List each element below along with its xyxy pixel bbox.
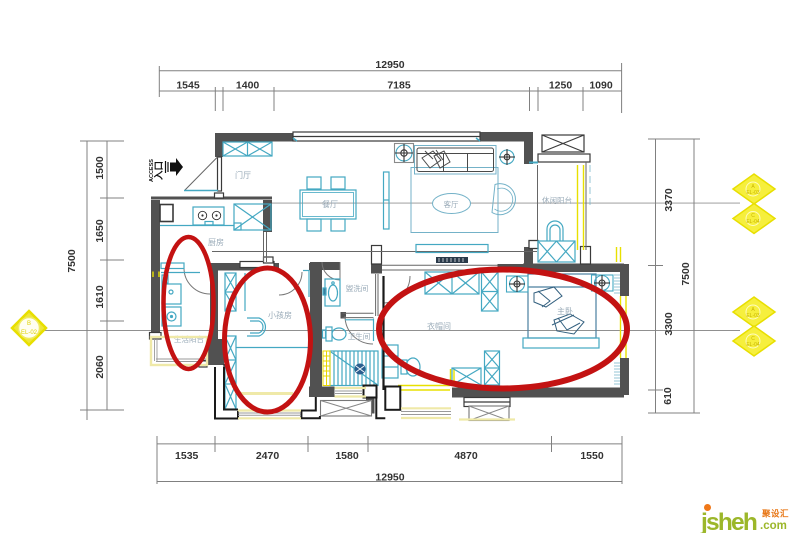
svg-text:小孩房: 小孩房 <box>268 310 292 320</box>
svg-text:7185: 7185 <box>387 80 411 92</box>
svg-text:1580: 1580 <box>335 450 359 462</box>
svg-text:7500: 7500 <box>680 262 692 286</box>
svg-text:1550: 1550 <box>580 450 604 462</box>
svg-text:4870: 4870 <box>454 450 478 462</box>
svg-text:1545: 1545 <box>176 80 200 92</box>
svg-text:EL-02: EL-02 <box>21 330 38 336</box>
svg-text:客厅: 客厅 <box>444 199 459 209</box>
svg-text:衣帽间: 衣帽间 <box>427 321 451 331</box>
svg-text:1500: 1500 <box>94 156 106 180</box>
svg-text:厨房: 厨房 <box>208 237 224 247</box>
svg-text:1535: 1535 <box>175 450 199 462</box>
svg-text:12950: 12950 <box>375 59 404 71</box>
svg-text:入口: 入口 <box>154 161 165 181</box>
svg-text:门厅: 门厅 <box>235 170 251 180</box>
svg-text:3370: 3370 <box>663 188 675 212</box>
svg-text:ACCESS: ACCESS <box>149 159 155 182</box>
svg-text:盥洗间: 盥洗间 <box>346 283 369 293</box>
svg-text:1400: 1400 <box>236 80 260 92</box>
svg-text:EL-04: EL-04 <box>746 219 760 225</box>
svg-text:3300: 3300 <box>663 312 675 336</box>
svg-text:卫生间: 卫生间 <box>348 331 371 341</box>
svg-text:.com: .com <box>760 520 787 532</box>
svg-text:2470: 2470 <box>256 450 280 462</box>
svg-text:聚设汇: 聚设汇 <box>761 509 789 519</box>
svg-text:休闲阳台: 休闲阳台 <box>542 195 572 205</box>
svg-text:EL-03: EL-03 <box>746 190 760 196</box>
svg-text:主卧: 主卧 <box>557 306 573 316</box>
svg-text:EL-04: EL-04 <box>746 342 760 348</box>
svg-text:610: 610 <box>662 387 674 405</box>
svg-text:生活阳台: 生活阳台 <box>174 334 204 344</box>
svg-text:7500: 7500 <box>66 249 78 273</box>
svg-text:1090: 1090 <box>589 80 613 92</box>
svg-text:2060: 2060 <box>94 355 106 379</box>
svg-text:jsheh: jsheh <box>700 509 757 533</box>
svg-text:1250: 1250 <box>549 80 573 92</box>
svg-text:12950: 12950 <box>375 472 404 484</box>
svg-text:B: B <box>27 321 31 327</box>
svg-text:餐厅: 餐厅 <box>322 200 338 209</box>
svg-text:1610: 1610 <box>94 285 106 309</box>
svg-text:1650: 1650 <box>94 219 106 243</box>
svg-text:EL-03: EL-03 <box>746 313 760 319</box>
